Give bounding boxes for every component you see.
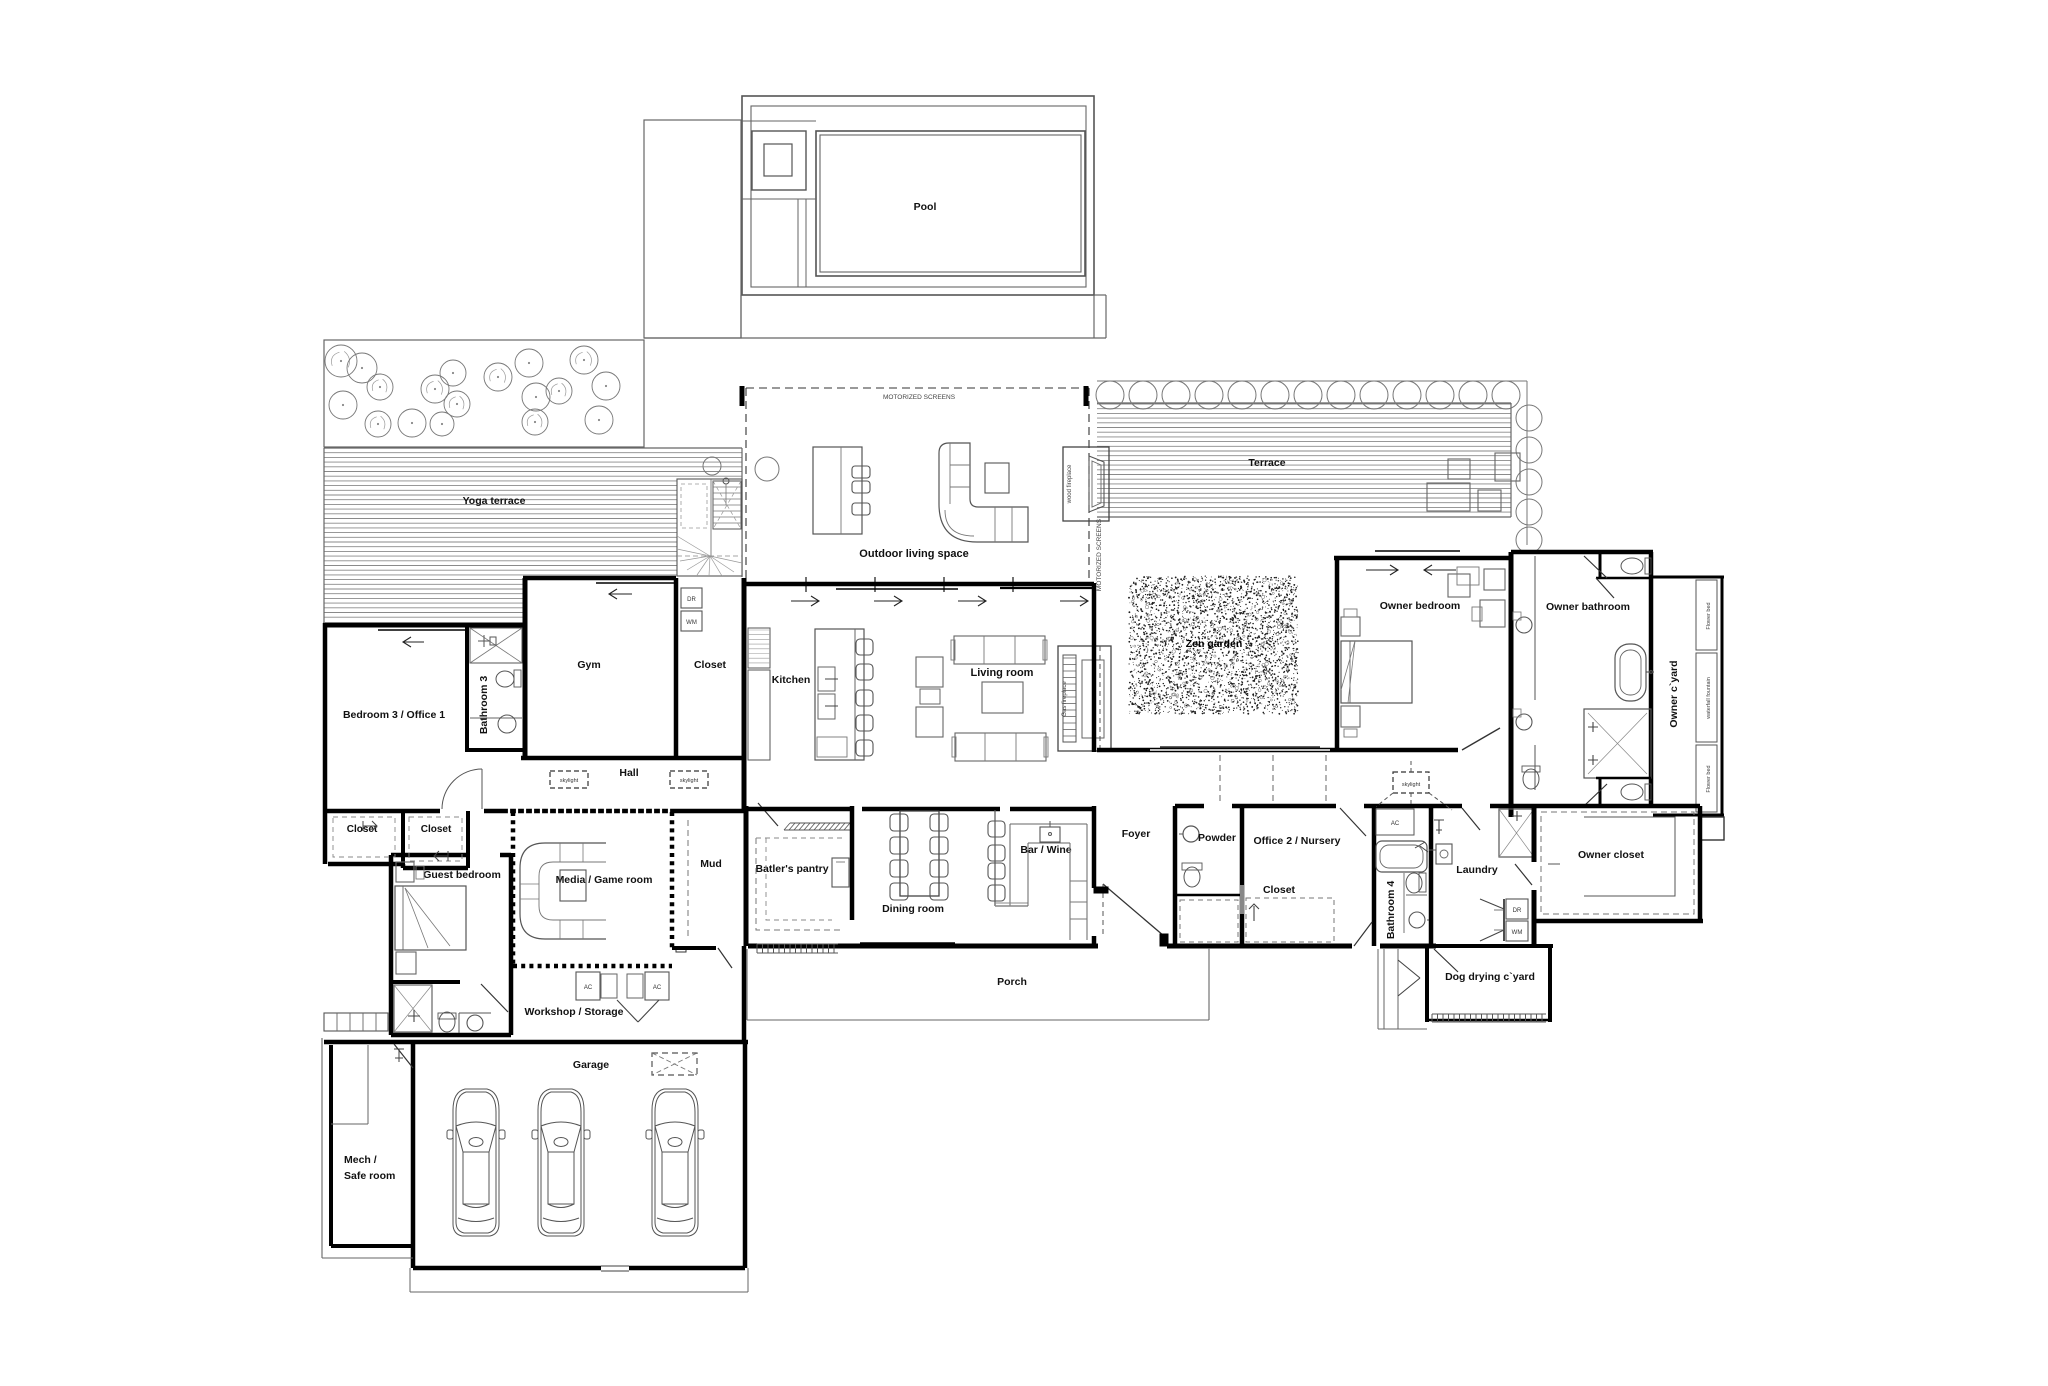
svg-text:Terrace: Terrace [1248,457,1285,469]
svg-text:Mech /: Mech / [344,1154,377,1166]
svg-text:Gas fireplace: Gas fireplace [1062,681,1068,717]
svg-text:MOTORIZED SCREENS: MOTORIZED SCREENS [1096,518,1103,591]
svg-text:Safe room: Safe room [344,1170,395,1182]
svg-text:Mud: Mud [700,858,722,870]
svg-text:Living room: Living room [971,667,1034,679]
svg-text:Pool: Pool [914,201,937,213]
svg-text:Closet: Closet [421,824,452,835]
svg-text:Kitchen: Kitchen [772,674,811,686]
svg-text:Owner bedroom: Owner bedroom [1380,600,1461,612]
svg-text:skylight: skylight [1402,782,1421,788]
svg-text:skylight: skylight [680,778,699,784]
svg-text:DR: DR [687,597,696,603]
svg-text:Bedroom 3 / Office 1: Bedroom 3 / Office 1 [343,709,445,721]
svg-text:Powder: Powder [1198,832,1236,844]
svg-text:Closet: Closet [1263,884,1296,896]
svg-text:Dog drying c`yard: Dog drying c`yard [1445,971,1535,983]
svg-text:Zen garden: Zen garden [1186,638,1243,650]
svg-text:Owner c`yard: Owner c`yard [1668,660,1680,727]
svg-text:waterfall fountain: waterfall fountain [1706,677,1712,720]
svg-text:AC: AC [1391,821,1400,827]
svg-text:Foyer: Foyer [1122,828,1151,840]
svg-text:AC: AC [653,985,662,991]
svg-text:WM: WM [1512,930,1523,936]
svg-text:Gym: Gym [577,659,600,671]
svg-text:AC: AC [584,985,593,991]
svg-text:Bathroom 3: Bathroom 3 [478,676,490,735]
svg-text:Yoga terrace: Yoga terrace [463,495,526,507]
svg-text:Flower bed: Flower bed [1706,602,1712,629]
svg-text:Porch: Porch [997,976,1027,988]
svg-text:Bathroom 4: Bathroom 4 [1385,881,1397,940]
svg-text:Flower bed: Flower bed [1706,765,1712,792]
svg-text:MOTORIZED SCREENS: MOTORIZED SCREENS [883,394,956,401]
svg-text:Media / Game room: Media / Game room [556,874,653,886]
svg-text:Owner closet: Owner closet [1578,849,1644,861]
svg-text:Hall: Hall [619,767,638,779]
svg-text:Garage: Garage [573,1059,609,1071]
svg-text:DR: DR [1513,908,1522,914]
svg-text:Outdoor living space: Outdoor living space [859,548,968,560]
svg-text:Workshop / Storage: Workshop / Storage [525,1006,624,1018]
svg-text:WM: WM [686,620,697,626]
svg-text:Dining room: Dining room [882,903,944,915]
svg-text:skylight: skylight [560,778,579,784]
svg-text:Guest bedroom: Guest bedroom [423,869,501,881]
svg-text:Office 2 / Nursery: Office 2 / Nursery [1254,835,1341,847]
svg-text:Closet: Closet [694,659,727,671]
svg-text:Owner bathroom: Owner bathroom [1546,601,1630,613]
svg-text:wood fireplace: wood fireplace [1067,464,1073,504]
svg-text:Laundry: Laundry [1456,864,1498,876]
